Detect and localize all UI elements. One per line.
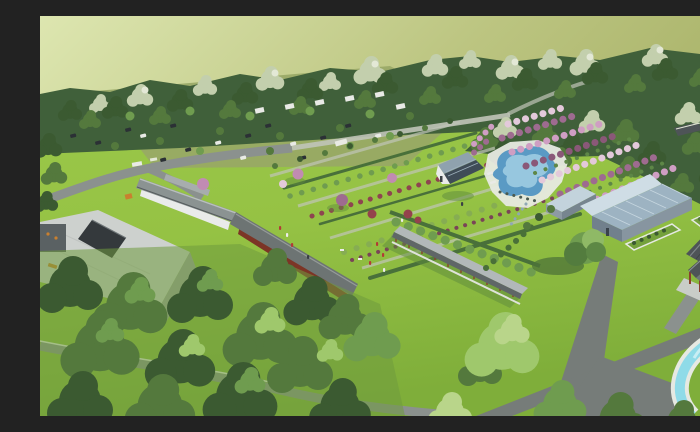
rendering-canvas	[40, 16, 700, 416]
gate-block	[40, 224, 66, 252]
aerial-rendering	[40, 16, 700, 416]
